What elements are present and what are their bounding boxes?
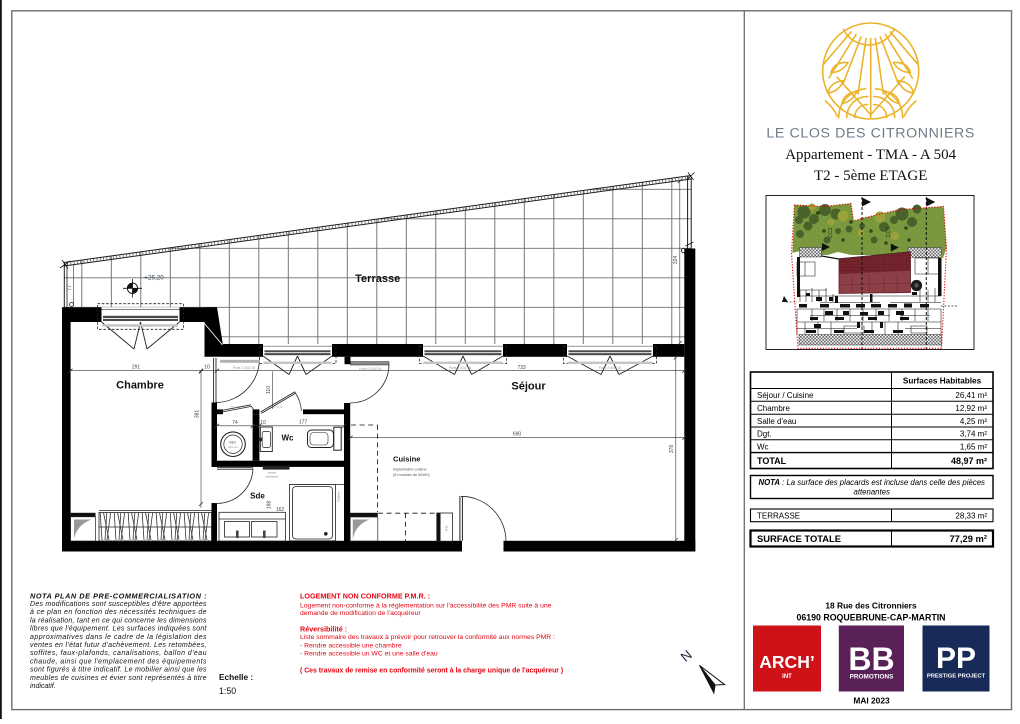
svg-text:26,41 m²: 26,41 m² bbox=[955, 391, 987, 400]
svg-text:BB: BB bbox=[848, 641, 894, 677]
svg-text:P. 0.73: P. 0.73 bbox=[231, 405, 240, 409]
svg-text:demande de modification de l'a: demande de modification de l'acquéreur bbox=[300, 610, 421, 617]
svg-text:06190 ROQUEBRUNE-CAP-MARTIN: 06190 ROQUEBRUNE-CAP-MARTIN bbox=[796, 613, 945, 623]
svg-text:LOGEMENT NON CONFORME P.M.R. :: LOGEMENT NON CONFORME P.M.R. : bbox=[300, 592, 430, 601]
svg-text:TOTAL: TOTAL bbox=[757, 456, 787, 466]
svg-text:- Rendre accessible une chambr: - Rendre accessible une chambre bbox=[300, 642, 402, 649]
svg-text:4,25 m²: 4,25 m² bbox=[960, 417, 987, 426]
svg-text:+26,20: +26,20 bbox=[144, 275, 164, 282]
svg-text:PRESTIGE PROJECT: PRESTIGE PROJECT bbox=[927, 674, 986, 680]
svg-text:(6 modules de 60x60): (6 modules de 60x60) bbox=[393, 473, 430, 477]
svg-text:378: 378 bbox=[669, 445, 675, 454]
svg-text:198: 198 bbox=[267, 501, 273, 510]
svg-text:324: 324 bbox=[673, 256, 679, 265]
svg-text:Cuisine: Cuisine bbox=[393, 455, 420, 464]
svg-text:meubles de cuisines et évier s: meubles de cuisines et évier sont représ… bbox=[30, 675, 207, 682]
svg-text:attenantes: attenantes bbox=[853, 488, 890, 497]
svg-text:serviettes: serviettes bbox=[266, 475, 279, 479]
svg-text:Séjour / Cuisine: Séjour / Cuisine bbox=[757, 391, 814, 400]
svg-text:BEC: BEC bbox=[230, 441, 238, 445]
svg-text:P. 0.73: P. 0.73 bbox=[273, 405, 282, 409]
svg-text:12,92 m²: 12,92 m² bbox=[955, 404, 987, 413]
svg-text:la réalisation, tant en ce qui: la réalisation, tant en ce qui concerne … bbox=[30, 617, 207, 624]
svg-text:Terrasse: Terrasse bbox=[355, 273, 400, 285]
svg-text:200L elec: 200L elec bbox=[228, 446, 239, 449]
svg-text:1,65 m²: 1,65 m² bbox=[960, 442, 987, 451]
svg-text:733: 733 bbox=[517, 365, 526, 371]
svg-text:Wc: Wc bbox=[282, 434, 295, 443]
svg-text:GTL: GTL bbox=[445, 525, 449, 531]
svg-text:sont figurés à titre indicatif: sont figurés à titre indicatif. Le mobil… bbox=[30, 667, 207, 674]
svg-text:PROMOTIONS: PROMOTIONS bbox=[850, 674, 894, 681]
svg-text:soffites, faux-plafonds, canal: soffites, faux-plafonds, canalisations, … bbox=[30, 650, 207, 657]
svg-text:162: 162 bbox=[276, 507, 285, 513]
svg-text:77: 77 bbox=[67, 285, 73, 291]
svg-text:MAI 2023: MAI 2023 bbox=[853, 696, 890, 706]
svg-text:77,29 m²: 77,29 m² bbox=[949, 533, 987, 544]
svg-text:Porte 0.93x2.04: Porte 0.93x2.04 bbox=[359, 367, 382, 371]
svg-text:ventes en l'état futur d'achèv: ventes en l'état futur d'achèvement. Les… bbox=[30, 642, 207, 649]
svg-text:10: 10 bbox=[204, 365, 210, 371]
svg-text:SURFACE TOTALE: SURFACE TOTALE bbox=[757, 533, 841, 544]
svg-text:110: 110 bbox=[266, 386, 272, 394]
svg-text:TERRASSE: TERRASSE bbox=[757, 511, 800, 520]
svg-text:177: 177 bbox=[299, 419, 308, 425]
svg-text:libres que l'équipement. Les s: libres que l'équipement. Les surfaces in… bbox=[30, 626, 208, 633]
svg-text:Séjour: Séjour bbox=[511, 381, 546, 393]
svg-text:3,74 m²: 3,74 m² bbox=[960, 430, 987, 439]
svg-text:Porte 2.40x2.04: Porte 2.40x2.04 bbox=[599, 366, 622, 370]
svg-text:28,33 m²: 28,33 m² bbox=[955, 511, 987, 520]
svg-text:690: 690 bbox=[513, 432, 522, 438]
svg-text:Sde: Sde bbox=[250, 492, 265, 501]
svg-text:ARCH’: ARCH’ bbox=[759, 652, 814, 672]
svg-text:Chambre: Chambre bbox=[116, 380, 164, 392]
svg-text:Porte 2.40x2.04: Porte 2.40x2.04 bbox=[233, 366, 256, 370]
svg-text:Liste sommaire des travaux à p: Liste sommaire des travaux à prévoir pou… bbox=[300, 634, 555, 641]
svg-text:Echelle :: Echelle : bbox=[219, 672, 253, 682]
svg-text:Implantation cuisine: Implantation cuisine bbox=[393, 468, 427, 472]
svg-text:74: 74 bbox=[232, 420, 238, 426]
svg-text:PP: PP bbox=[936, 642, 976, 675]
svg-text:Wc: Wc bbox=[757, 442, 769, 451]
svg-text:- Rendre accessible un WC et u: - Rendre accessible un WC et une salle d… bbox=[300, 651, 438, 658]
svg-text:Réversibilité :: Réversibilité : bbox=[300, 624, 347, 633]
svg-text:NOTA : La surface des placards: NOTA : La surface des placards est inclu… bbox=[758, 478, 985, 487]
svg-text:291: 291 bbox=[132, 365, 141, 371]
svg-text:Dgt.: Dgt. bbox=[757, 430, 772, 439]
svg-text:Logement non-conforme à la rég: Logement non-conforme à la réglementatio… bbox=[300, 603, 552, 610]
svg-text:Porte 2.40x2.04: Porte 2.40x2.04 bbox=[449, 366, 472, 370]
svg-text:10: 10 bbox=[260, 420, 266, 426]
svg-text:381: 381 bbox=[195, 410, 201, 419]
svg-text:à ce plan en fonction des néce: à ce plan en fonction des nécessités tec… bbox=[30, 609, 207, 616]
svg-text:18 Rue des Citronniers: 18 Rue des Citronniers bbox=[825, 601, 917, 611]
svg-text:CC2: CC2 bbox=[828, 227, 834, 238]
svg-text:approximatives dans le cadre d: approximatives dans le cadre de la légis… bbox=[30, 634, 207, 641]
svg-text:chaude, ainsi que l'emplacemen: chaude, ainsi que l'emplacement des équi… bbox=[30, 658, 207, 665]
svg-text:INT: INT bbox=[782, 674, 792, 680]
svg-text:( Ces travaux de remise en con: ( Ces travaux de remise en conformité se… bbox=[300, 667, 563, 674]
svg-text:LE CLOS DES CITRONNIERS: LE CLOS DES CITRONNIERS bbox=[766, 126, 975, 142]
svg-text:Surfaces Habitables: Surfaces Habitables bbox=[903, 377, 982, 386]
svg-text:CC3: CC3 bbox=[886, 226, 892, 237]
svg-text:1:50: 1:50 bbox=[219, 686, 236, 696]
svg-text:48,97 m²: 48,97 m² bbox=[951, 456, 987, 466]
svg-text:Salle d'eau: Salle d'eau bbox=[757, 417, 796, 426]
svg-text:Tablette: Tablette bbox=[337, 491, 341, 502]
svg-text:T2 - 5ème ETAGE: T2 - 5ème ETAGE bbox=[814, 168, 927, 184]
svg-text:Des modifications sont suscept: Des modifications sont susceptibles d'êt… bbox=[30, 601, 207, 608]
svg-text:indicatif.: indicatif. bbox=[30, 683, 56, 690]
svg-text:Chambre: Chambre bbox=[757, 404, 790, 413]
svg-text:NOTA PLAN DE PRE-COMMERCIALISA: NOTA PLAN DE PRE-COMMERCIALISATION : bbox=[30, 591, 207, 600]
svg-text:Appartement - TMA - A 504: Appartement - TMA - A 504 bbox=[785, 147, 956, 163]
